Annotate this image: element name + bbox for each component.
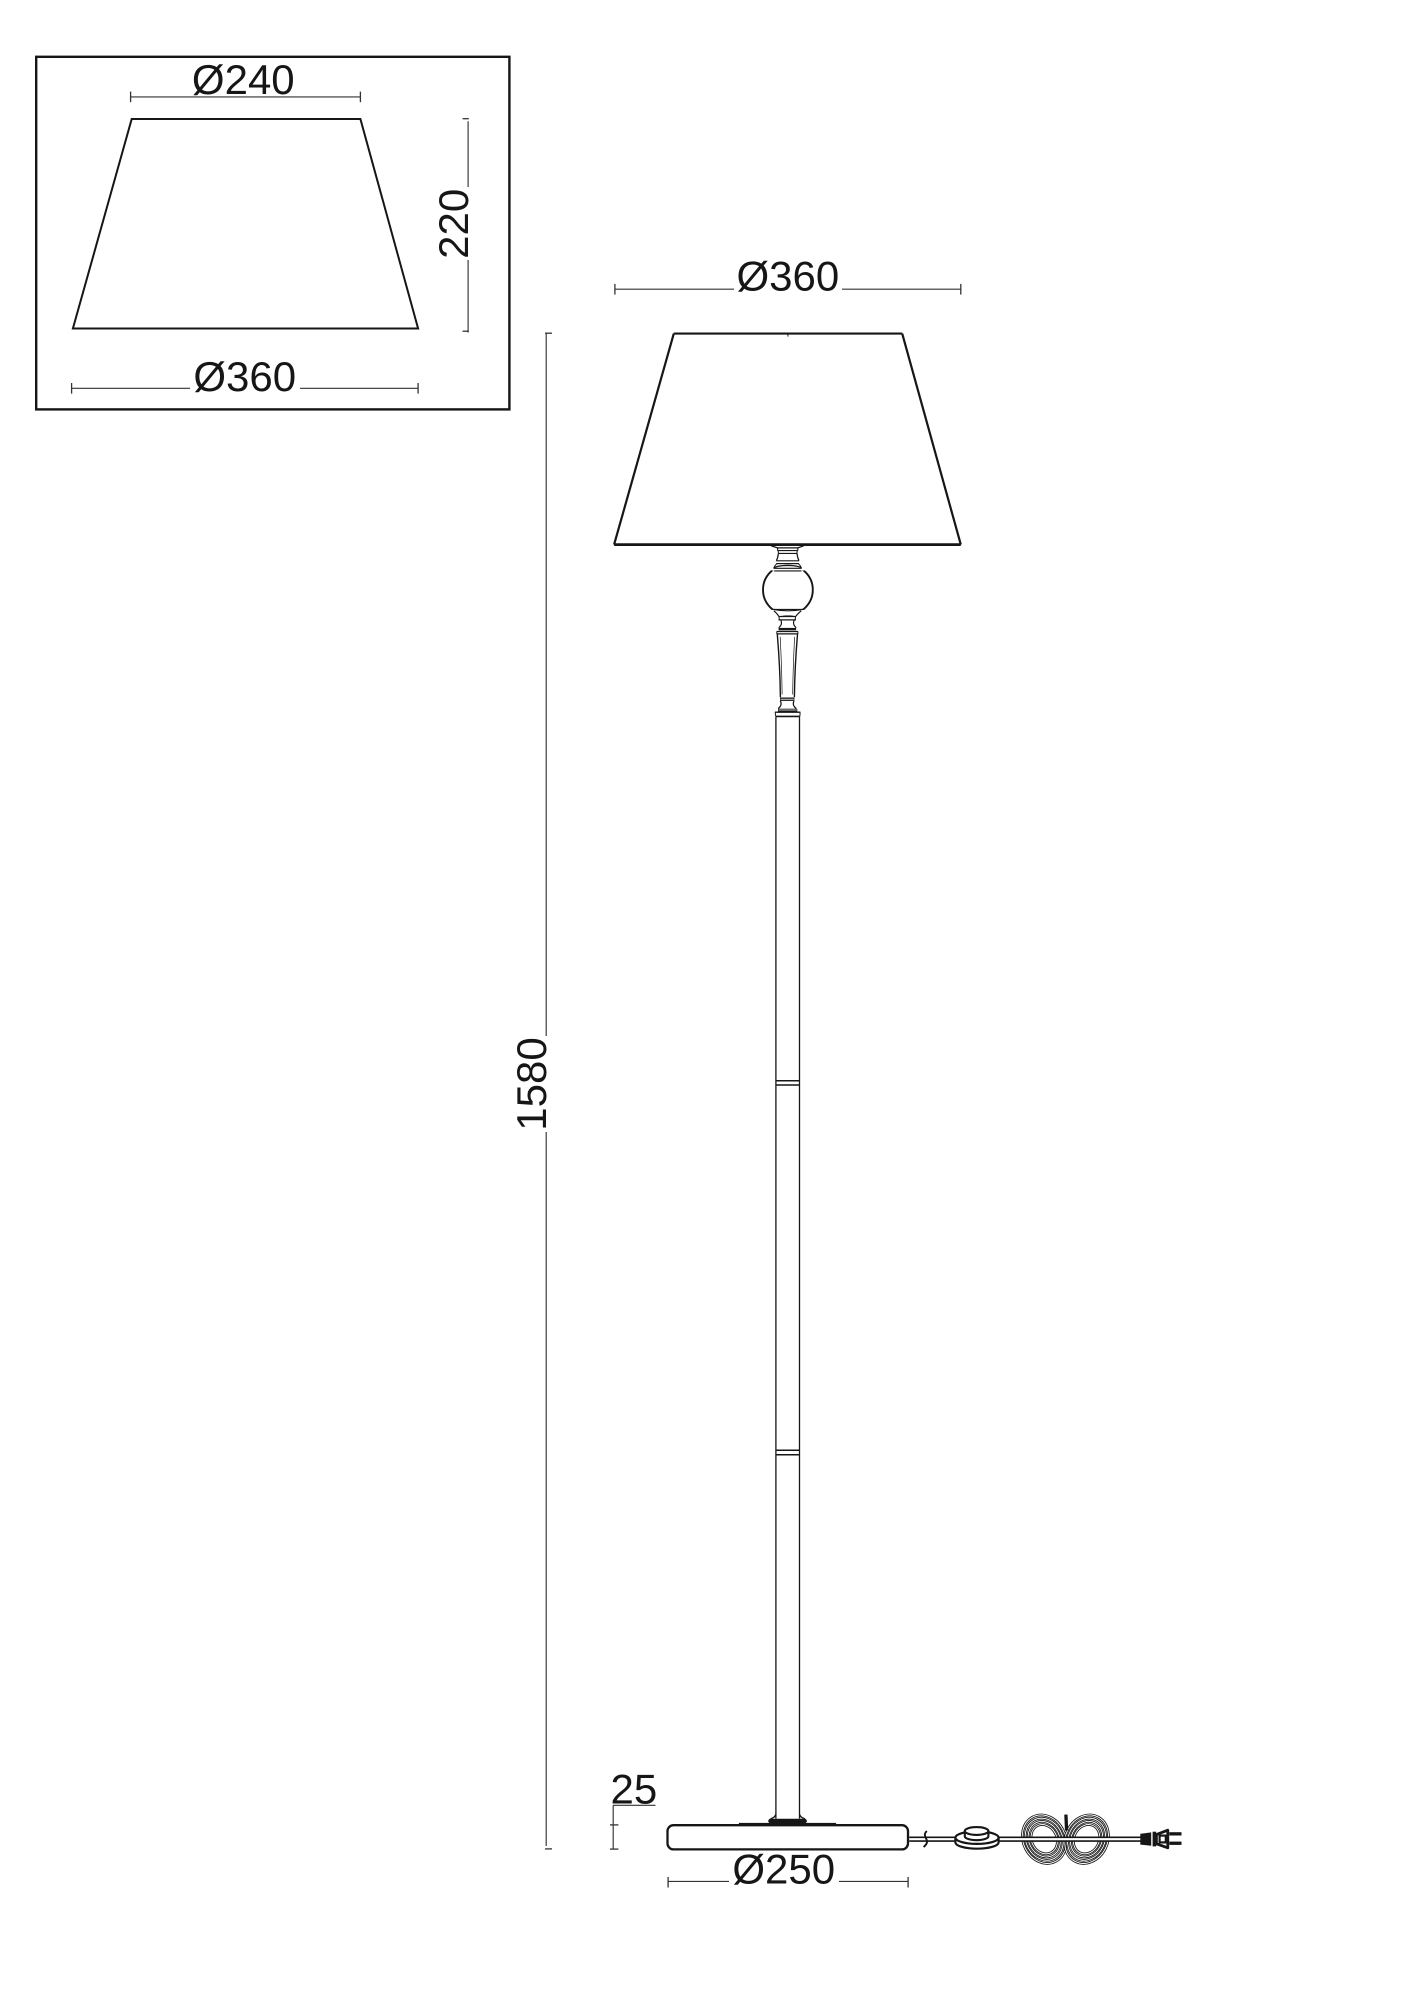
svg-text:Ø250: Ø250	[732, 1845, 835, 1892]
svg-text:1580: 1580	[508, 1037, 555, 1130]
svg-text:Ø240: Ø240	[192, 56, 295, 103]
svg-text:25: 25	[611, 1766, 658, 1813]
svg-text:Ø360: Ø360	[737, 252, 840, 299]
svg-text:220: 220	[430, 189, 477, 259]
svg-text:Ø360: Ø360	[193, 353, 296, 400]
